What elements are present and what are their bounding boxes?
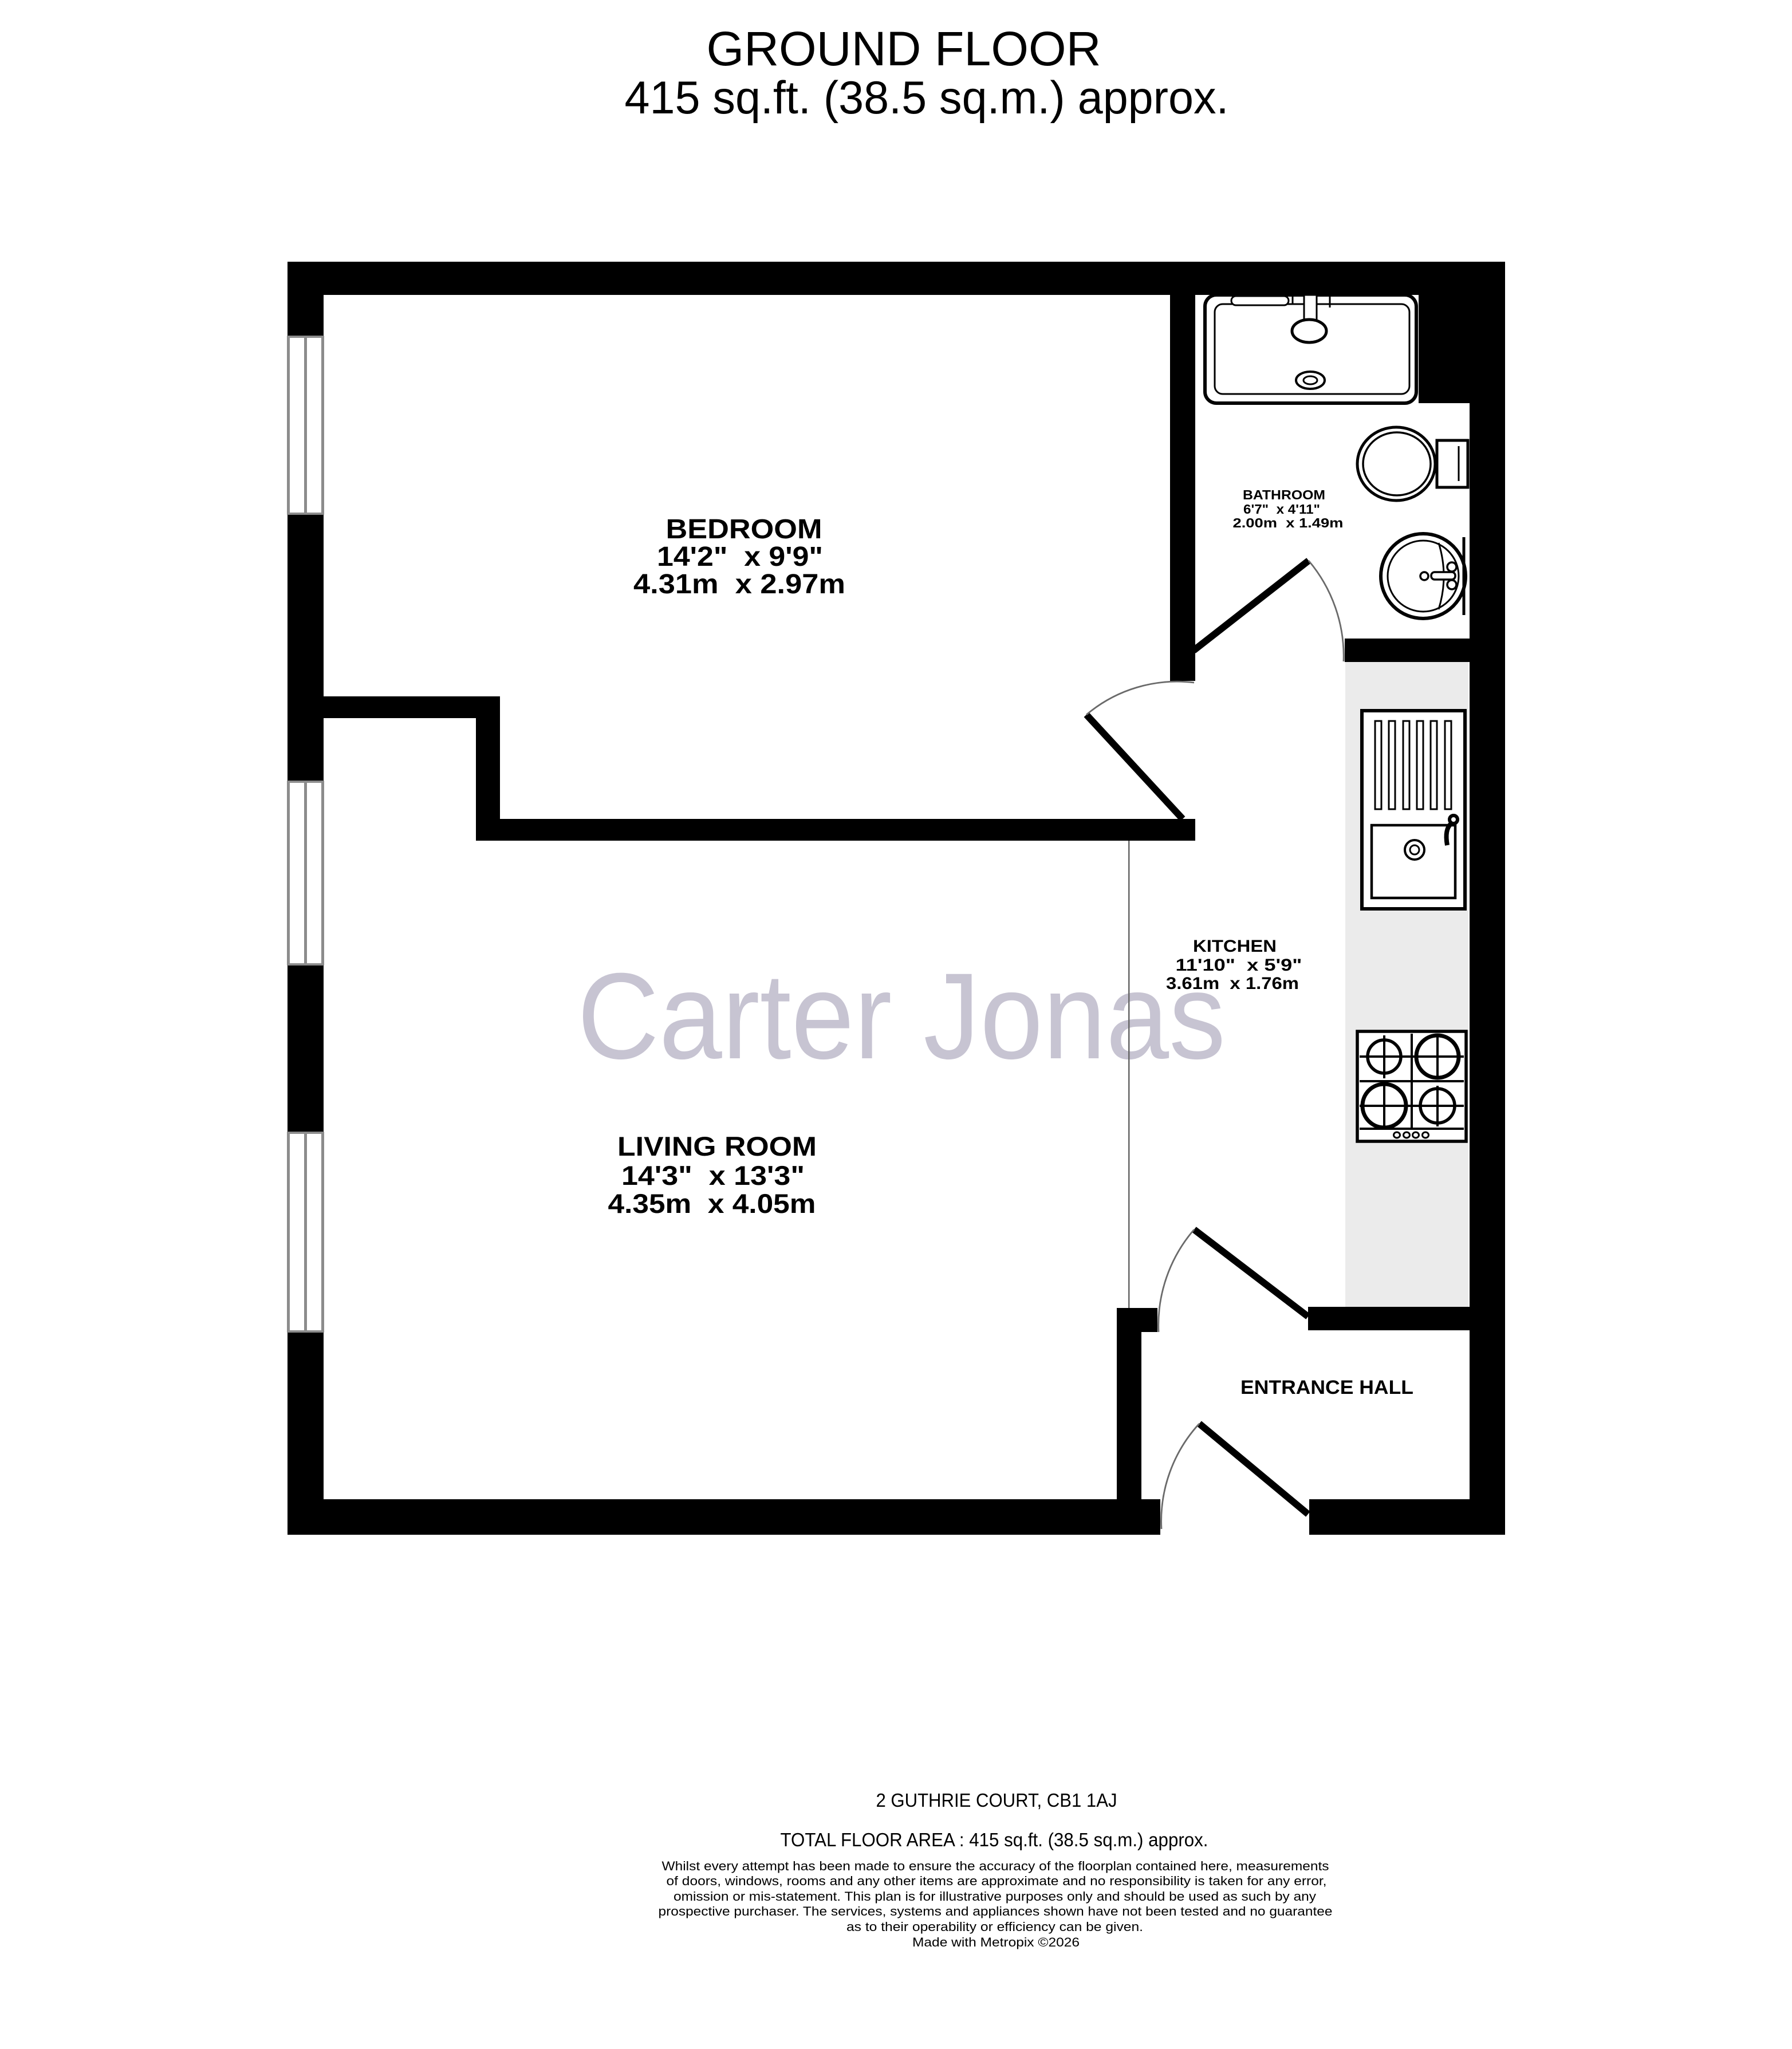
svg-text:prospective purchaser. The ser: prospective purchaser. The services, sys… — [659, 1904, 1333, 1918]
svg-text:14'3" x 13'3": 14'3" x 13'3" — [621, 1160, 805, 1191]
svg-text:ENTRANCE HALL: ENTRANCE HALL — [1240, 1377, 1413, 1398]
svg-text:LIVING ROOM: LIVING ROOM — [617, 1131, 817, 1161]
svg-text:11'10" x 5'9": 11'10" x 5'9" — [1176, 956, 1302, 975]
svg-text:14'2" x 9'9": 14'2" x 9'9" — [657, 542, 823, 572]
svg-text:2.00m x 1.49m: 2.00m x 1.49m — [1233, 515, 1344, 530]
svg-text:Made with Metropix ©2026: Made with Metropix ©2026 — [912, 1935, 1080, 1949]
svg-text:GROUND FLOOR: GROUND FLOOR — [707, 22, 1101, 76]
svg-text:BEDROOM: BEDROOM — [666, 514, 822, 545]
svg-text:omission or mis-statement. Thi: omission or mis-statement. This plan is … — [674, 1889, 1317, 1904]
svg-text:415 sq.ft. (38.5 sq.m.) approx: 415 sq.ft. (38.5 sq.m.) approx. — [625, 72, 1229, 124]
svg-text:of doors, windows, rooms and a: of doors, windows, rooms and any other i… — [667, 1874, 1327, 1888]
svg-text:BATHROOM: BATHROOM — [1243, 487, 1325, 502]
svg-text:Whilst every attempt has been: Whilst every attempt has been made to en… — [662, 1859, 1329, 1873]
svg-text:3.61m x 1.76m: 3.61m x 1.76m — [1166, 974, 1299, 993]
svg-text:as to their operability or eff: as to their operability or efficiency ca… — [846, 1920, 1143, 1934]
svg-text:4.31m x 2.97m: 4.31m x 2.97m — [633, 569, 845, 600]
svg-text:6'7" x 4'11": 6'7" x 4'11" — [1243, 502, 1320, 517]
svg-text:4.35m x 4.05m: 4.35m x 4.05m — [608, 1188, 816, 1219]
svg-text:2 GUTHRIE COURT, CB1 1AJ: 2 GUTHRIE COURT, CB1 1AJ — [876, 1790, 1117, 1811]
svg-text:KITCHEN: KITCHEN — [1193, 937, 1277, 956]
svg-text:TOTAL FLOOR AREA : 415 sq.ft.: TOTAL FLOOR AREA : 415 sq.ft. (38.5 sq.m… — [781, 1829, 1208, 1850]
